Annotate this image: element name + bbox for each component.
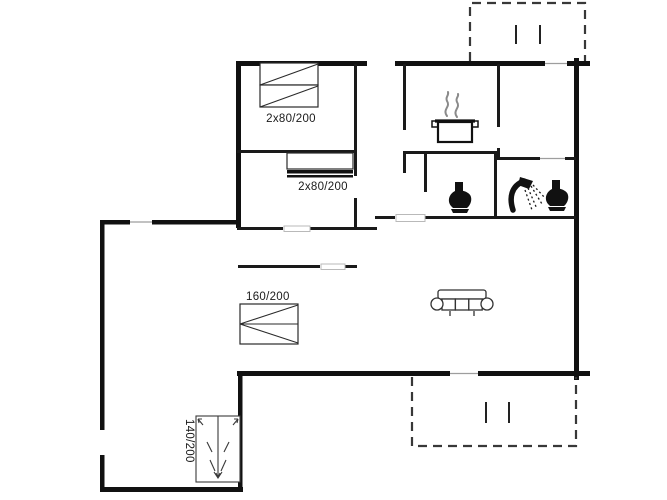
sofa-arm: [481, 298, 493, 310]
cooking-pot-steam-icon: [432, 92, 478, 142]
wall-segment: [494, 151, 497, 219]
wall-segment: [395, 61, 545, 66]
bed-size-label: 140/200: [183, 419, 195, 463]
pot-body: [438, 122, 472, 142]
shower-spray: [525, 190, 532, 210]
sofa-icon: [431, 290, 493, 316]
toilet-bowl: [449, 190, 471, 208]
terrace-outline: [412, 377, 576, 446]
sofa-back: [438, 290, 486, 299]
wall-segment: [152, 220, 240, 225]
wall-segment: [354, 198, 357, 229]
wall-segment: [403, 151, 497, 154]
bed-headboard: [287, 175, 353, 178]
bed-frame: [287, 153, 353, 169]
double-bed-icon: [240, 304, 298, 344]
wall-segment: [403, 64, 406, 130]
double-bed-icon: [196, 416, 240, 482]
wall-segment: [100, 487, 243, 492]
wall-segment: [565, 157, 576, 160]
terrace-top: [470, 3, 585, 61]
terrace-outline: [470, 3, 585, 61]
bed-headboard: [287, 170, 353, 174]
wall-segment: [100, 455, 105, 492]
wall-segment: [375, 216, 395, 219]
sofa-arm: [431, 298, 443, 310]
door-threshold: [284, 226, 310, 232]
wall-segment: [310, 227, 377, 230]
wall-segment: [354, 64, 357, 176]
shower-head: [518, 177, 533, 189]
bed-icon: [287, 153, 353, 178]
wall-segment: [425, 216, 576, 219]
exterior-walls: [100, 58, 590, 492]
bed-size-label: 160/200: [246, 291, 290, 303]
shower-spray: [528, 188, 537, 209]
toilet-icon: [546, 180, 568, 211]
toilet-base: [548, 207, 566, 211]
door-threshold: [396, 215, 425, 222]
wall-segment: [424, 154, 427, 192]
bed-size-label: 2x80/200: [266, 113, 316, 125]
floor-plan-canvas: 2x80/200 2x80/200 160/200 140/200: [0, 0, 667, 500]
wall-segment: [237, 227, 283, 230]
wall-segment: [100, 220, 105, 430]
door-threshold: [321, 264, 345, 270]
sofa-cushion: [469, 299, 482, 310]
wall-segment: [497, 64, 500, 127]
toilet-bowl: [546, 188, 568, 206]
wall-segment: [403, 151, 406, 173]
shower-icon: [511, 177, 545, 210]
terrace-bottom: [412, 377, 576, 446]
sofa-cushion: [442, 299, 455, 310]
wall-segment: [478, 371, 590, 376]
wall-segment: [236, 61, 241, 228]
wall-segment: [345, 265, 357, 268]
wall-segment: [238, 265, 320, 268]
wall-segment: [237, 371, 450, 376]
toilet-icon: [449, 182, 471, 213]
floor-plan: 2x80/200 2x80/200 160/200 140/200: [0, 0, 667, 500]
steam-squiggle: [455, 94, 458, 117]
sofa-cushion: [455, 299, 468, 310]
wall-segment: [497, 157, 540, 160]
bed-size-label: 2x80/200: [298, 181, 348, 193]
shower-spray: [533, 185, 545, 198]
toilet-base: [451, 209, 469, 213]
steam-squiggle: [445, 92, 448, 116]
bunk-bed-icon: [260, 63, 318, 107]
